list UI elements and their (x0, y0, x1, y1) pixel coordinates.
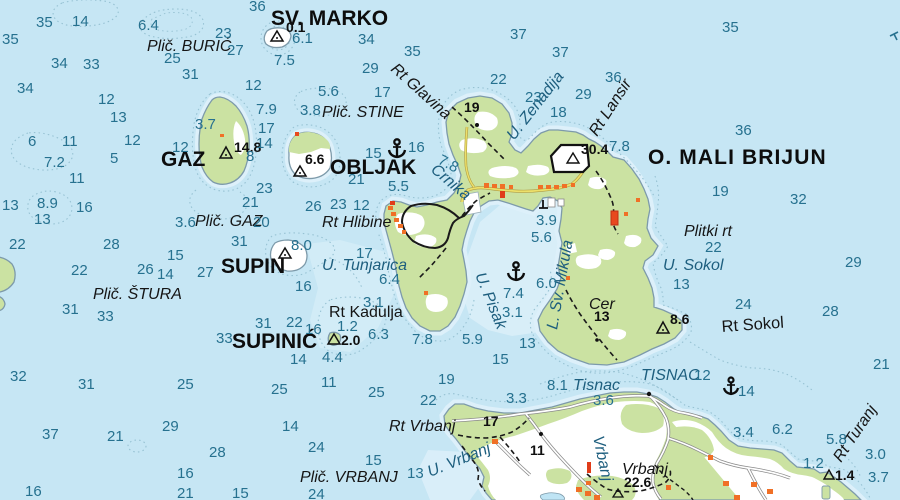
svg-text:15: 15 (365, 452, 382, 469)
svg-text:6: 6 (28, 133, 36, 150)
svg-text:23: 23 (330, 196, 347, 213)
svg-text:6.3: 6.3 (368, 326, 389, 343)
svg-text:3.1: 3.1 (502, 304, 523, 321)
svg-text:18: 18 (550, 104, 567, 121)
svg-text:24: 24 (308, 486, 325, 500)
svg-text:12: 12 (124, 132, 141, 149)
svg-text:6.6: 6.6 (305, 151, 325, 167)
svg-text:14: 14 (157, 266, 174, 283)
svg-text:31: 31 (78, 376, 95, 393)
svg-text:11: 11 (530, 442, 545, 458)
svg-text:22: 22 (9, 236, 26, 253)
svg-text:3.7: 3.7 (195, 116, 216, 133)
svg-text:17: 17 (374, 84, 391, 101)
svg-text:35: 35 (404, 43, 421, 60)
svg-text:3.0: 3.0 (865, 446, 886, 463)
svg-text:27: 27 (197, 264, 214, 281)
svg-text:16: 16 (295, 278, 312, 295)
svg-text:5.6: 5.6 (531, 229, 552, 246)
svg-text:5.5: 5.5 (388, 178, 409, 195)
svg-text:29: 29 (845, 254, 862, 271)
svg-text:30.4: 30.4 (581, 141, 608, 157)
svg-text:7.5: 7.5 (274, 52, 295, 69)
svg-text:22: 22 (705, 239, 722, 256)
svg-text:17: 17 (356, 245, 373, 262)
svg-text:13: 13 (673, 276, 690, 293)
svg-text:1.4: 1.4 (835, 467, 855, 483)
svg-text:6.0: 6.0 (536, 275, 557, 292)
svg-text:7.9: 7.9 (256, 101, 277, 118)
svg-text:16: 16 (177, 465, 194, 482)
svg-text:26: 26 (137, 261, 154, 278)
svg-text:13: 13 (2, 197, 19, 214)
svg-text:5: 5 (110, 150, 118, 167)
svg-text:6.1: 6.1 (292, 30, 313, 47)
svg-text:20: 20 (253, 214, 270, 231)
svg-text:17: 17 (483, 413, 499, 429)
svg-text:33: 33 (83, 56, 100, 73)
svg-text:29: 29 (575, 86, 592, 103)
svg-text:Plič. STINE: Plič. STINE (322, 104, 404, 121)
svg-text:21: 21 (348, 171, 365, 188)
svg-text:Plitki rt: Plitki rt (684, 223, 733, 240)
svg-text:37: 37 (42, 426, 59, 443)
svg-text:31: 31 (231, 233, 248, 250)
svg-text:16: 16 (305, 321, 322, 338)
svg-text:37: 37 (552, 44, 569, 61)
svg-text:6.4: 6.4 (138, 17, 159, 34)
svg-text:21: 21 (242, 194, 259, 211)
svg-text:26: 26 (305, 198, 322, 215)
svg-text:7.8: 7.8 (609, 138, 630, 155)
svg-text:Plič. VRBANJ: Plič. VRBANJ (300, 469, 399, 486)
svg-text:31: 31 (182, 66, 199, 83)
svg-text:16: 16 (25, 483, 42, 500)
svg-text:8.1: 8.1 (547, 377, 568, 394)
svg-text:8.0: 8.0 (291, 237, 312, 254)
svg-text:Plič. ŠTURA: Plič. ŠTURA (93, 284, 182, 303)
svg-text:5.9: 5.9 (462, 331, 483, 348)
svg-text:1.2: 1.2 (337, 318, 358, 335)
svg-text:1.2: 1.2 (803, 455, 824, 472)
svg-text:14: 14 (256, 135, 273, 152)
svg-text:8.6: 8.6 (670, 311, 690, 327)
svg-text:28: 28 (209, 444, 226, 461)
svg-text:7.4: 7.4 (503, 285, 524, 302)
svg-text:13: 13 (519, 335, 536, 352)
svg-text:3.3: 3.3 (506, 390, 527, 407)
svg-text:Rt Hlibine: Rt Hlibine (322, 214, 391, 231)
svg-text:31: 31 (62, 301, 79, 318)
svg-text:11: 11 (62, 133, 78, 150)
svg-text:19: 19 (712, 183, 729, 200)
svg-text:13: 13 (34, 211, 51, 228)
svg-text:7.8: 7.8 (412, 331, 433, 348)
svg-text:21: 21 (107, 428, 124, 445)
svg-text:Rt Vrbanj: Rt Vrbanj (389, 418, 456, 435)
svg-text:22: 22 (490, 71, 507, 88)
svg-text:12: 12 (353, 197, 370, 214)
svg-text:36: 36 (735, 122, 752, 139)
svg-text:7.2: 7.2 (44, 154, 65, 171)
svg-text:22: 22 (420, 392, 437, 409)
svg-text:15: 15 (232, 485, 249, 500)
svg-text:12: 12 (172, 139, 189, 156)
svg-text:28: 28 (103, 236, 120, 253)
svg-text:O. MALI BRIJUN: O. MALI BRIJUN (648, 146, 827, 169)
svg-text:15: 15 (492, 351, 509, 368)
svg-text:24: 24 (308, 439, 325, 456)
svg-text:4.4: 4.4 (322, 349, 343, 366)
svg-text:33: 33 (97, 308, 114, 325)
svg-text:32: 32 (10, 368, 27, 385)
svg-text:23: 23 (215, 25, 232, 42)
svg-text:31: 31 (255, 315, 272, 332)
svg-text:21: 21 (873, 356, 890, 373)
svg-text:24: 24 (735, 296, 752, 313)
svg-text:8: 8 (246, 148, 254, 165)
svg-text:11: 11 (69, 170, 85, 187)
svg-text:35: 35 (722, 19, 739, 36)
svg-text:25: 25 (271, 381, 288, 398)
svg-text:27: 27 (227, 42, 244, 59)
svg-text:36: 36 (249, 0, 266, 15)
svg-text:32: 32 (790, 191, 807, 208)
svg-text:25: 25 (164, 50, 181, 67)
svg-text:3.6: 3.6 (593, 392, 614, 409)
svg-text:13: 13 (110, 109, 127, 126)
svg-text:34: 34 (358, 31, 375, 48)
svg-text:3.7: 3.7 (868, 469, 889, 486)
svg-text:15: 15 (365, 145, 382, 162)
svg-text:11: 11 (321, 374, 337, 391)
svg-text:13: 13 (407, 465, 424, 482)
svg-text:37: 37 (510, 26, 527, 43)
svg-text:35: 35 (36, 14, 53, 31)
svg-text:TISNAC: TISNAC (641, 367, 700, 384)
svg-text:22: 22 (71, 262, 88, 279)
svg-text:34: 34 (17, 80, 34, 97)
svg-text:28: 28 (822, 303, 839, 320)
svg-text:14: 14 (72, 13, 89, 30)
svg-text:23: 23 (525, 89, 542, 106)
svg-text:U. Sokol: U. Sokol (663, 257, 724, 274)
svg-text:6.2: 6.2 (772, 421, 793, 438)
svg-text:8.9: 8.9 (37, 195, 58, 212)
svg-text:14: 14 (290, 351, 307, 368)
svg-text:22: 22 (286, 314, 303, 331)
svg-text:3.9: 3.9 (536, 212, 557, 229)
svg-text:33: 33 (216, 330, 233, 347)
svg-text:14: 14 (738, 383, 755, 400)
svg-text:25: 25 (368, 384, 385, 401)
svg-text:21: 21 (177, 485, 194, 500)
svg-text:3.6: 3.6 (175, 214, 196, 231)
svg-text:12: 12 (694, 367, 711, 384)
svg-text:12: 12 (245, 77, 262, 94)
svg-text:19: 19 (438, 371, 455, 388)
svg-text:35: 35 (2, 31, 19, 48)
svg-text:14: 14 (282, 418, 299, 435)
svg-text:5.6: 5.6 (318, 83, 339, 100)
svg-text:13: 13 (594, 308, 610, 324)
svg-text:29: 29 (362, 60, 379, 77)
svg-text:36: 36 (605, 69, 622, 86)
svg-text:16: 16 (408, 139, 425, 156)
svg-text:34: 34 (51, 55, 68, 72)
svg-text:3.1: 3.1 (363, 294, 384, 311)
svg-text:25: 25 (177, 376, 194, 393)
svg-text:12: 12 (98, 91, 115, 108)
svg-text:29: 29 (162, 418, 179, 435)
svg-text:3.8: 3.8 (300, 102, 321, 119)
svg-text:22.6: 22.6 (624, 474, 651, 490)
svg-text:19: 19 (464, 99, 480, 115)
svg-text:16: 16 (76, 199, 93, 216)
svg-text:SUPIN: SUPIN (221, 255, 285, 278)
svg-text:6.4: 6.4 (379, 271, 400, 288)
svg-text:15: 15 (167, 247, 184, 264)
svg-text:5.8: 5.8 (826, 431, 847, 448)
svg-text:3.4: 3.4 (733, 424, 754, 441)
